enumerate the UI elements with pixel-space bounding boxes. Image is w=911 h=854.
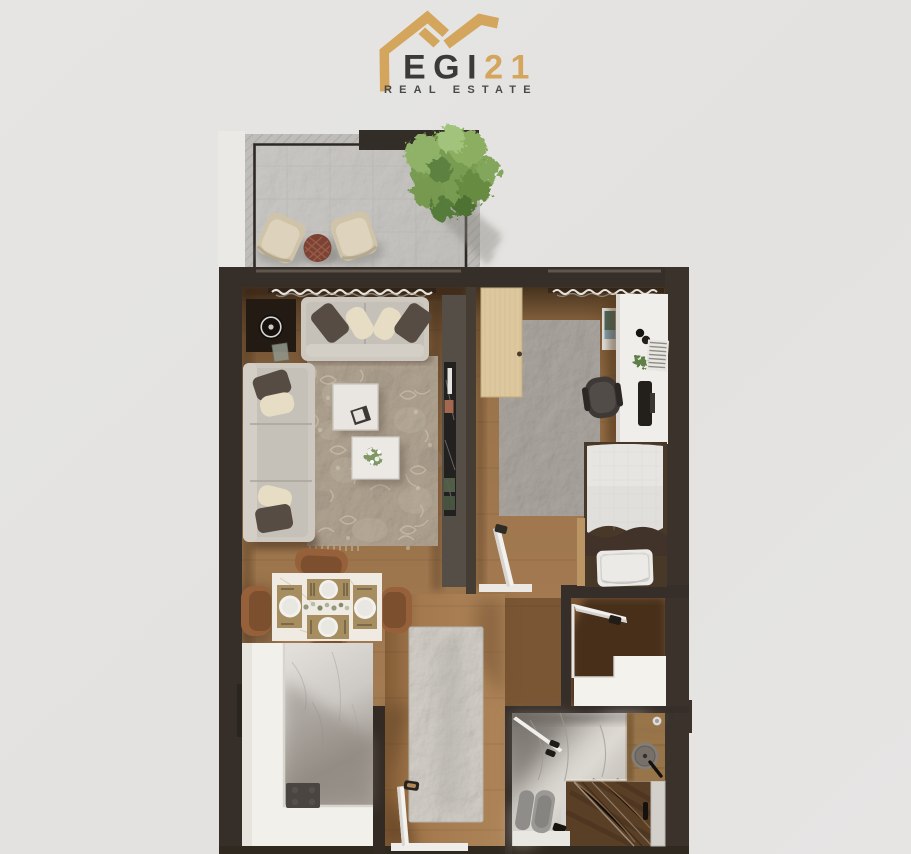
svg-text:EGI21: EGI21 xyxy=(403,49,537,87)
svg-text:REAL ESTATE: REAL ESTATE xyxy=(384,84,538,96)
